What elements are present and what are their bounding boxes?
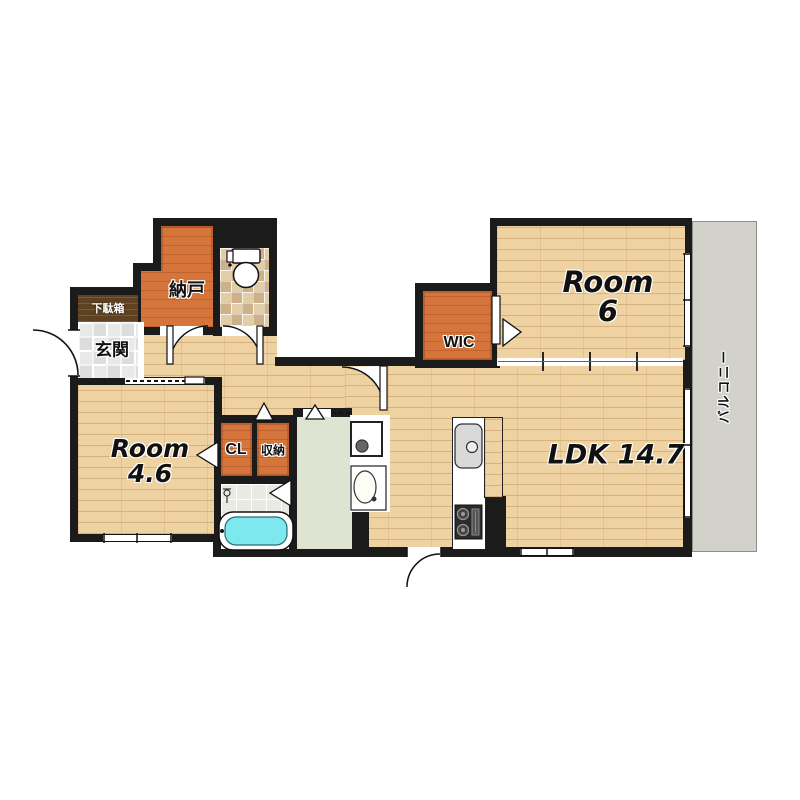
wall-corridor-top — [275, 357, 430, 366]
kitchen-counter — [452, 417, 486, 550]
room6-size: 6 — [563, 297, 654, 326]
window-ldk — [684, 388, 691, 518]
room6-name: Room — [563, 268, 654, 297]
room46-label: Room 4.6 — [111, 436, 189, 486]
doorway-service — [407, 547, 441, 557]
room46-size: 4.6 — [111, 461, 189, 486]
bathtub-zone — [221, 514, 289, 549]
ldk-label: LDK 14.7 — [548, 440, 685, 471]
room46-name: Room — [111, 436, 189, 461]
getabako-label: 下駄箱 — [92, 300, 125, 316]
storage-label: 収納 — [261, 442, 285, 459]
exterior-void — [277, 285, 415, 358]
window-ldk-bottom — [520, 548, 574, 556]
genkan-label: 玄関 — [95, 336, 129, 361]
washroom-fixture-column — [350, 415, 390, 512]
room6-label: Room 6 — [563, 268, 654, 326]
doorway-nando — [160, 326, 203, 336]
exterior-void — [277, 208, 490, 285]
sliding-door-room6 — [497, 358, 683, 366]
doorway-entrance — [69, 330, 79, 376]
balcony-label: バルコニー — [714, 349, 733, 424]
nando-label: 納戸 — [169, 276, 205, 302]
toilet-room — [220, 248, 269, 327]
genkan-step — [138, 322, 144, 380]
wall-pillar-kitchen — [484, 496, 506, 548]
wic-label: WIC — [443, 334, 474, 352]
doorway-toilet — [222, 326, 263, 336]
window-room6 — [684, 253, 691, 347]
cl-label: CL — [225, 441, 246, 459]
doorway-washroom — [303, 409, 331, 417]
floorplan: 納戸 下駄箱 玄関 Room 6 WIC LDK 14.7 Room 4.6 C… — [0, 0, 800, 800]
bathroom-floor — [221, 484, 289, 514]
washroom-floor — [297, 417, 352, 549]
doorway-room46 — [125, 378, 205, 384]
window-room46 — [103, 534, 172, 542]
kitchen-counter-top — [484, 417, 503, 498]
